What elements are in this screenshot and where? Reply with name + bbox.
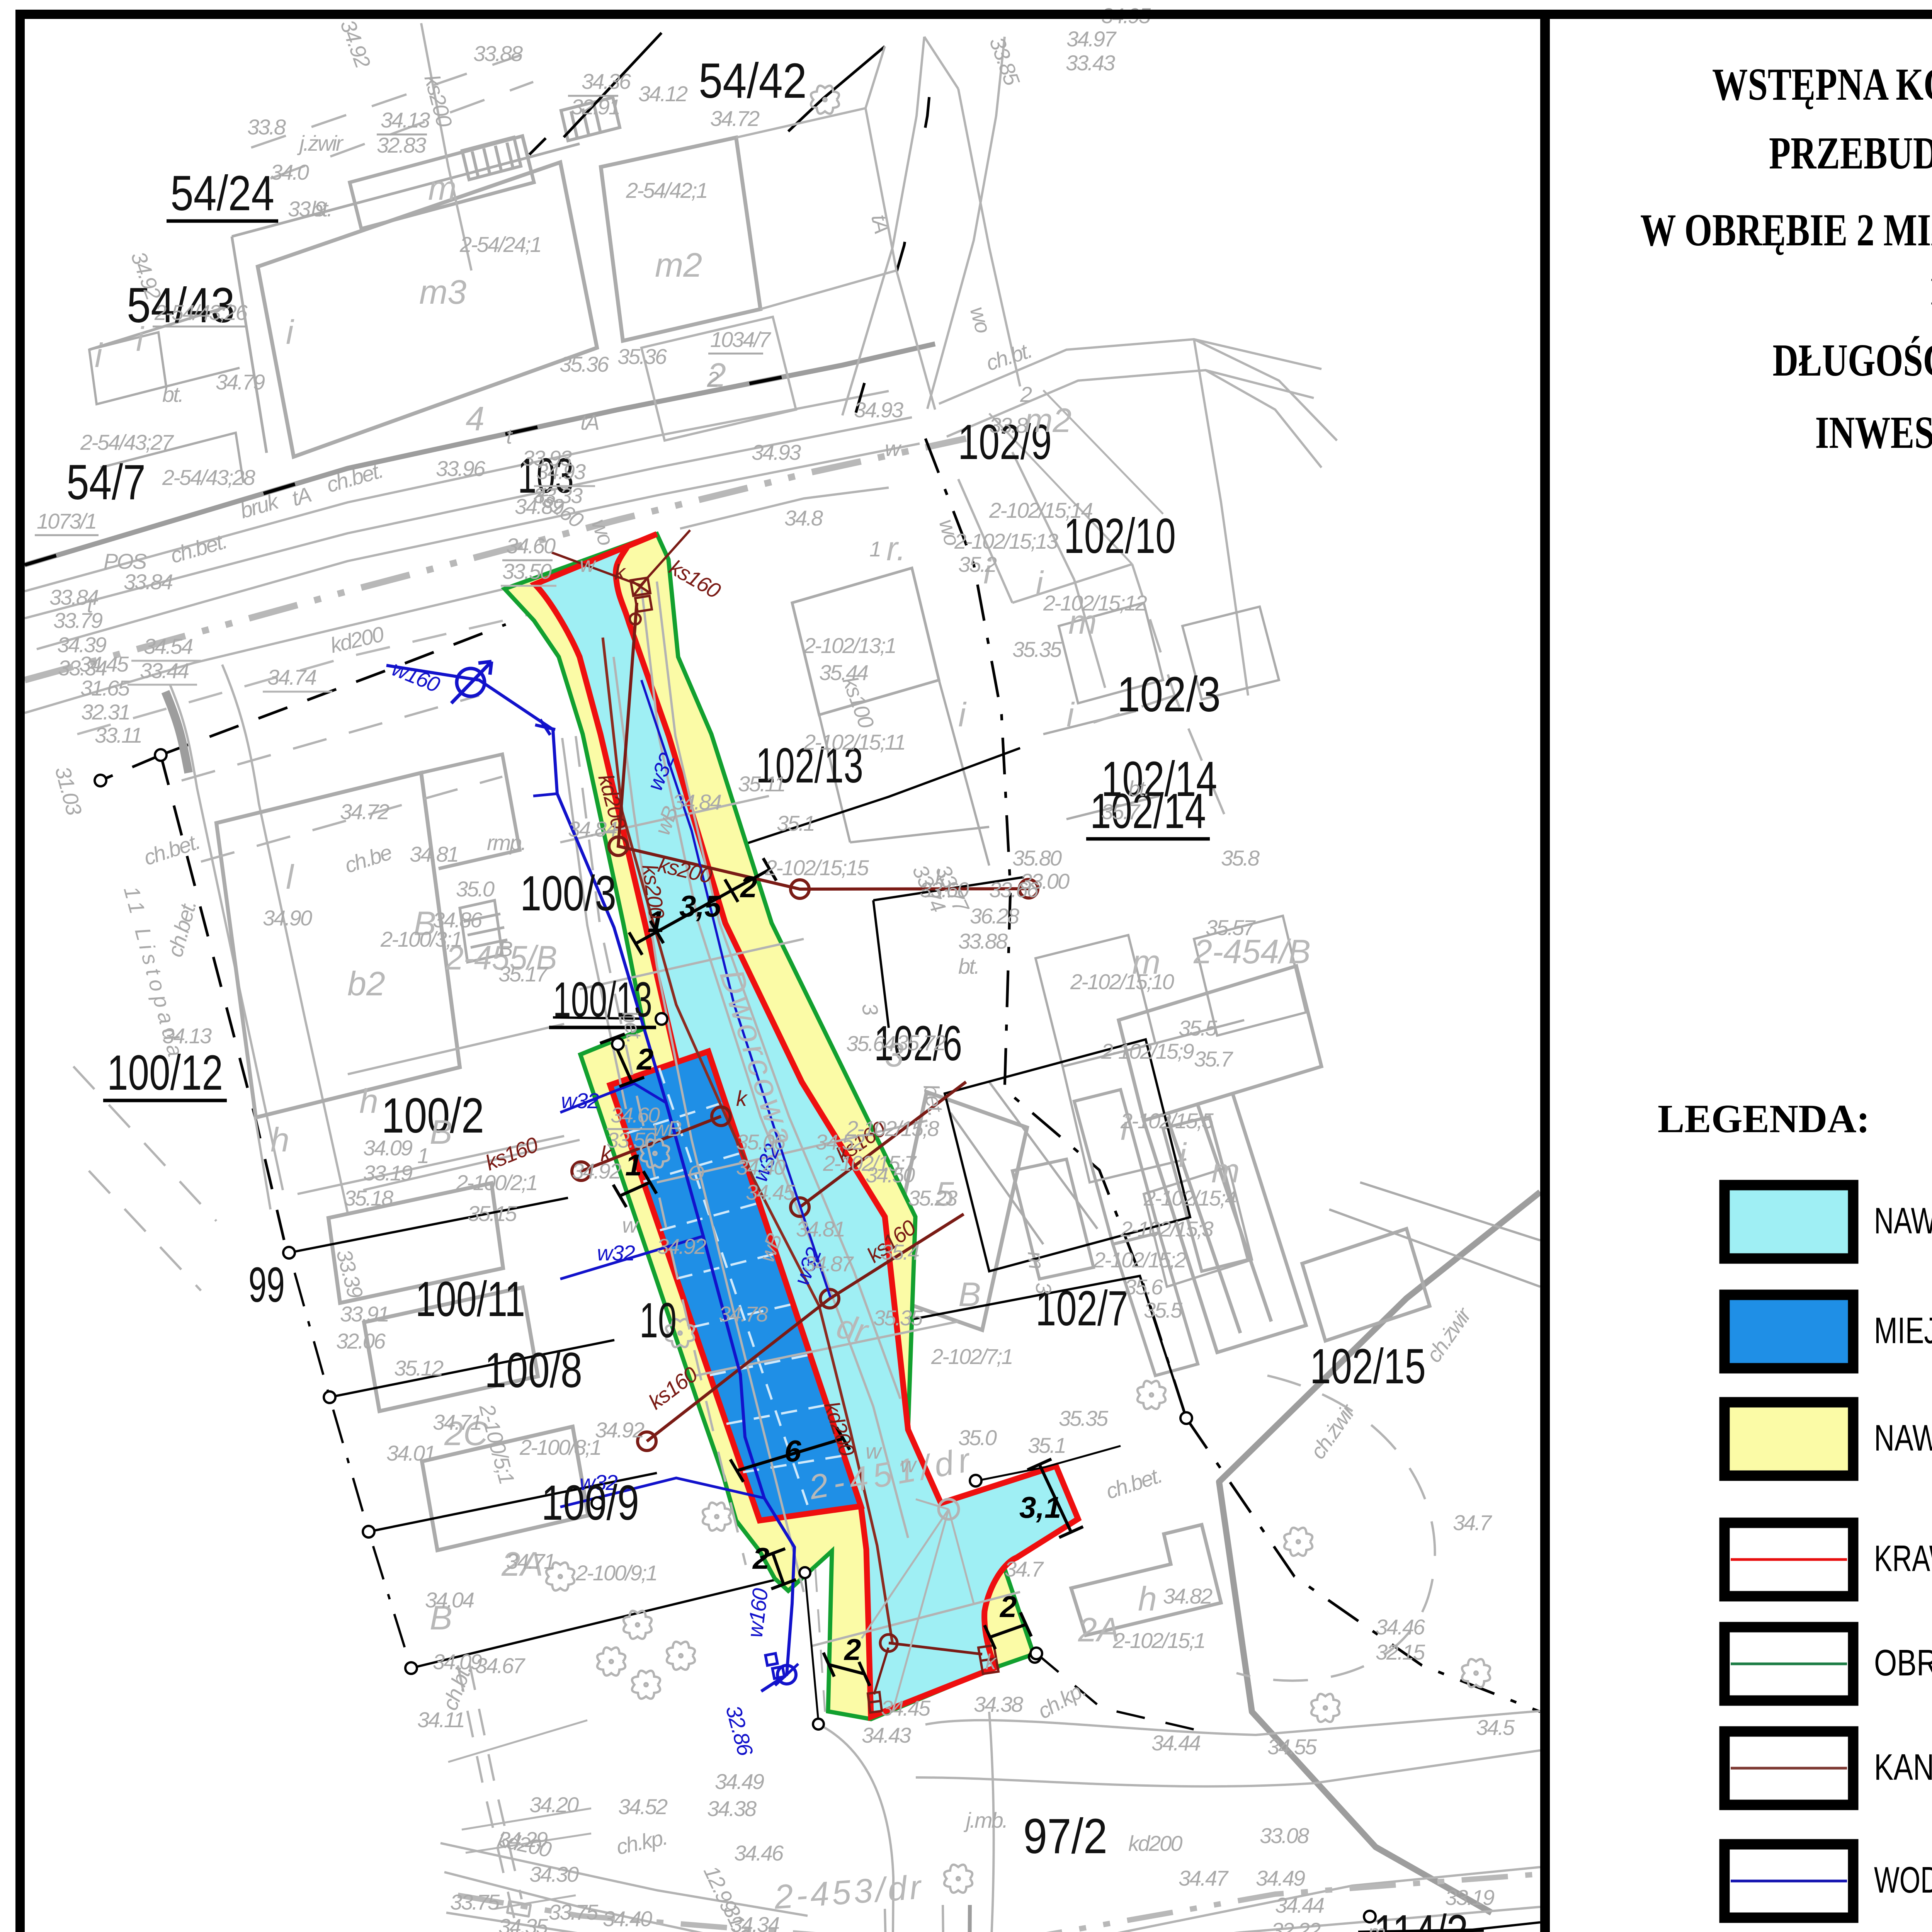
svg-text:i: i (958, 696, 967, 734)
svg-text:100/9: 100/9 (541, 1475, 639, 1531)
svg-text:54/24: 54/24 (170, 166, 274, 221)
svg-text:w: w (580, 552, 597, 577)
svg-text:h: h (270, 1121, 289, 1159)
svg-text:34.46: 34.46 (734, 1841, 784, 1865)
svg-text:OBRZEŻE: OBRZEŻE (1874, 1642, 1932, 1684)
svg-text:34.30: 34.30 (529, 1862, 579, 1886)
svg-text:100/3: 100/3 (520, 866, 616, 921)
svg-text:33.08: 33.08 (1260, 1823, 1309, 1848)
svg-text:35.64: 35.64 (846, 1031, 895, 1056)
svg-text:B: B (958, 1275, 981, 1313)
svg-text:2: 2 (1020, 382, 1032, 406)
svg-text:33.19: 33.19 (363, 1161, 412, 1185)
svg-text:34.74: 34.74 (267, 665, 316, 689)
svg-text:KRAWĘŻNIK DROGOWY: KRAWĘŻNIK DROGOWY (1874, 1538, 1932, 1579)
svg-text:w32: w32 (561, 1088, 599, 1113)
svg-text:34.60: 34.60 (506, 534, 556, 558)
svg-text:34.8: 34.8 (784, 506, 823, 530)
svg-text:34.92: 34.92 (657, 1234, 706, 1259)
svg-text:35.7: 35.7 (1101, 799, 1141, 824)
svg-text:34.04: 34.04 (425, 1588, 474, 1612)
svg-text:34.93: 34.93 (854, 398, 903, 422)
svg-text:m: m (428, 169, 456, 207)
svg-text:35.18: 35.18 (344, 1186, 393, 1210)
svg-text:34.81: 34.81 (796, 1217, 844, 1241)
svg-text:bt.: bt. (311, 197, 332, 221)
svg-text:32.31: 32.31 (81, 700, 129, 724)
svg-text:34.97: 34.97 (1066, 27, 1117, 51)
svg-text:m: m (1023, 1250, 1049, 1270)
svg-text:35.7: 35.7 (1194, 1047, 1233, 1071)
svg-text:1: 1 (869, 537, 880, 561)
svg-text:34.01: 34.01 (386, 1441, 435, 1465)
svg-text:34.71: 34.71 (433, 1410, 481, 1434)
svg-text:2-54/43;27: 2-54/43;27 (80, 430, 174, 454)
svg-text:2-54/24;1: 2-54/24;1 (459, 232, 541, 257)
svg-text:WSTĘPNA KONCEPCJA ZAKRESU ROBÓ: WSTĘPNA KONCEPCJA ZAKRESU ROBÓT (1712, 59, 1932, 110)
svg-text:35.2: 35.2 (958, 552, 997, 577)
svg-text:31.65: 31.65 (80, 676, 130, 700)
svg-text:B: B (430, 1113, 452, 1151)
svg-text:i: i (1066, 696, 1075, 734)
svg-text:w32: w32 (597, 1241, 635, 1265)
svg-text:m2: m2 (1024, 401, 1071, 439)
svg-text:2-100/3;1: 2-100/3;1 (380, 927, 462, 951)
svg-text:WODOCIĄG: WODOCIĄG (1874, 1859, 1932, 1901)
svg-text:j.mb.: j.mb. (963, 1808, 1007, 1832)
svg-text:i: i (1179, 1136, 1187, 1174)
svg-text:36.28: 36.28 (970, 904, 1019, 928)
svg-text:2-100/2;1: 2-100/2;1 (456, 1170, 537, 1195)
svg-text:34.36: 34.36 (582, 69, 631, 94)
svg-text:32.91: 32.91 (571, 95, 619, 119)
svg-text:2-102/15;15: 2-102/15;15 (765, 855, 869, 880)
svg-text:34.90: 34.90 (263, 906, 312, 930)
svg-text:35.35: 35.35 (1012, 637, 1062, 662)
svg-text:m2: m2 (655, 246, 702, 284)
svg-text:w: w (622, 1213, 639, 1237)
svg-text:34.81: 34.81 (410, 842, 458, 866)
svg-text:34.54: 34.54 (144, 634, 193, 658)
svg-text:bt.: bt. (162, 382, 183, 406)
svg-text:2-102/7;1: 2-102/7;1 (931, 1344, 1012, 1369)
svg-text:4: 4 (466, 400, 485, 438)
svg-text:2: 2 (999, 1590, 1017, 1624)
svg-text:35.0: 35.0 (958, 1425, 997, 1450)
svg-text:34.87: 34.87 (804, 1252, 854, 1276)
svg-text:35.35: 35.35 (873, 1306, 923, 1330)
svg-text:bt.: bt. (1128, 776, 1149, 801)
svg-text:34.44: 34.44 (1151, 1731, 1201, 1755)
svg-text:2-102/15;9: 2-102/15;9 (1101, 1039, 1194, 1063)
svg-text:2-102/15;12: 2-102/15;12 (1043, 591, 1147, 615)
svg-text:35.6: 35.6 (1124, 1275, 1163, 1299)
svg-text:rmp.: rmp. (487, 830, 526, 855)
svg-text:35.11: 35.11 (738, 772, 785, 796)
svg-text:34.40: 34.40 (736, 1155, 786, 1179)
svg-text:kd200: kd200 (1128, 1831, 1182, 1855)
svg-text:34.50: 34.50 (866, 1163, 915, 1187)
svg-text:34.55: 34.55 (1267, 1735, 1317, 1759)
svg-text:LEGENDA:: LEGENDA: (1658, 1097, 1870, 1141)
svg-text:34.0: 34.0 (270, 160, 309, 184)
svg-text:34.49: 34.49 (1256, 1866, 1305, 1890)
svg-text:34.92: 34.92 (595, 1418, 645, 1442)
svg-text:34.84: 34.84 (672, 790, 721, 814)
svg-text:34.5: 34.5 (1476, 1715, 1515, 1740)
svg-text:33.79: 33.79 (53, 608, 102, 633)
svg-text:33.75: 33.75 (549, 1900, 599, 1924)
svg-text:W OBRĘBIE 2 MIASTA SĘPOPOL, NA: W OBRĘBIE 2 MIASTA SĘPOPOL, NA DZIAŁKACH… (1640, 204, 1932, 255)
svg-text:99: 99 (248, 1257, 285, 1313)
svg-text:34.45: 34.45 (79, 652, 129, 676)
svg-text:NAWIERZCHNIA CHODNIKA/OPASKI: NAWIERZCHNIA CHODNIKA/OPASKI (1874, 1417, 1932, 1459)
svg-text:34.13: 34.13 (162, 1024, 212, 1048)
svg-text:l: l (286, 858, 294, 896)
svg-text:34.40: 34.40 (603, 1906, 652, 1931)
svg-text:100/8: 100/8 (485, 1343, 582, 1398)
svg-text:DŁUGOŚĆ DROGI OK. 65 METRÓW: DŁUGOŚĆ DROGI OK. 65 METRÓW (1773, 335, 1932, 386)
svg-text:2: 2 (844, 1633, 861, 1667)
svg-text:34.93: 34.93 (752, 440, 801, 464)
svg-text:34.79: 34.79 (216, 370, 265, 394)
svg-text:2-102/15;10: 2-102/15;10 (1070, 969, 1174, 994)
svg-text:35.5: 35.5 (1179, 1016, 1218, 1040)
svg-text:33.75: 33.75 (450, 1890, 500, 1914)
svg-text:33.88: 33.88 (958, 929, 1008, 953)
svg-text:34.84: 34.84 (568, 817, 617, 841)
svg-text:6: 6 (784, 1434, 801, 1468)
svg-text:35.36: 35.36 (560, 352, 609, 376)
svg-text:MIEJSCA POSTOJOWE: MIEJSCA POSTOJOWE (1874, 1310, 1932, 1351)
svg-text:34.46: 34.46 (1376, 1615, 1425, 1639)
svg-text:2: 2 (636, 1042, 653, 1076)
svg-text:m: m (1368, 1920, 1385, 1932)
svg-text:1: 1 (625, 1148, 642, 1182)
svg-text:35.23: 35.23 (908, 1186, 957, 1210)
svg-text:m: m (1211, 1151, 1240, 1190)
svg-text:32.06: 32.06 (336, 1329, 386, 1353)
svg-text:h: h (1138, 1580, 1157, 1618)
svg-text:33.8: 33.8 (247, 115, 286, 139)
svg-text:2: 2 (707, 367, 719, 391)
svg-text:34.92: 34.92 (572, 1159, 621, 1183)
svg-text:35.4: 35.4 (881, 1240, 919, 1264)
svg-text:10: 10 (639, 1293, 677, 1348)
svg-text:34.47: 34.47 (1179, 1866, 1229, 1890)
svg-text:tA: tA (580, 410, 599, 434)
svg-text:34.09: 34.09 (363, 1136, 412, 1160)
svg-text:102/15: 102/15 (1310, 1339, 1426, 1394)
svg-text:j.żwir: j.żwir (297, 131, 344, 155)
svg-text:54/42: 54/42 (699, 53, 807, 109)
svg-text:35.1: 35.1 (1028, 1433, 1065, 1458)
svg-text:35.57: 35.57 (1206, 915, 1256, 940)
svg-text:35.72: 35.72 (896, 1031, 946, 1055)
svg-text:33.50: 33.50 (502, 559, 552, 583)
svg-text:35.8: 35.8 (1221, 846, 1260, 870)
svg-text:r.: r. (886, 529, 906, 568)
svg-text:i: i (1036, 564, 1044, 602)
svg-text:100/11: 100/11 (415, 1272, 525, 1327)
svg-text:33.88: 33.88 (473, 41, 523, 66)
svg-text:34.78: 34.78 (719, 1302, 768, 1326)
svg-text:32.15: 32.15 (1376, 1640, 1425, 1664)
svg-text:102/3: 102/3 (1117, 667, 1221, 722)
svg-text:2-100/9;1: 2-100/9;1 (575, 1561, 657, 1585)
svg-text:35.1: 35.1 (777, 811, 814, 835)
svg-text:2-102/13;1: 2-102/13;1 (803, 633, 896, 658)
svg-text:34.7: 34.7 (1453, 1510, 1492, 1535)
svg-text:2-102/15;3: 2-102/15;3 (1120, 1217, 1214, 1241)
svg-text:33.44: 33.44 (140, 658, 189, 683)
svg-text:32.22: 32.22 (1271, 1918, 1321, 1932)
svg-text:i: i (95, 336, 103, 374)
svg-text:33.00: 33.00 (1020, 869, 1070, 893)
svg-text:33.50: 33.50 (607, 1128, 656, 1152)
svg-text:34.44: 34.44 (1275, 1893, 1324, 1917)
svg-text:34.52: 34.52 (618, 1794, 668, 1819)
svg-text:33.11: 33.11 (95, 723, 141, 747)
svg-text:bt.: bt. (958, 954, 979, 978)
svg-text:m3: m3 (419, 273, 466, 311)
svg-text:INWESTOR: GMINA SĘPOPOL: INWESTOR: GMINA SĘPOPOL (1815, 407, 1932, 458)
svg-text:35.36: 35.36 (617, 344, 667, 369)
svg-text:NAWIERZCHNIA DROGI: NAWIERZCHNIA DROGI (1874, 1200, 1932, 1242)
svg-text:34.38: 34.38 (707, 1796, 757, 1821)
svg-text:w: w (866, 1439, 883, 1463)
svg-text:35.80: 35.80 (1012, 846, 1062, 870)
svg-text:33.19: 33.19 (1445, 1885, 1494, 1910)
svg-text:w: w (885, 436, 902, 461)
svg-text:2-102/15;5: 2-102/15;5 (1120, 1109, 1214, 1133)
svg-text:KANALIZACJA DESZCZOWA: KANALIZACJA DESZCZOWA (1874, 1747, 1932, 1788)
svg-text:34.43: 34.43 (862, 1723, 911, 1747)
svg-text:34.67: 34.67 (475, 1653, 526, 1678)
svg-text:35.12: 35.12 (394, 1356, 444, 1380)
svg-text:54/7: 54/7 (66, 455, 146, 510)
svg-text:33.96: 33.96 (436, 456, 486, 481)
svg-text:3,1: 3,1 (1019, 1490, 1061, 1524)
svg-text:PRZEBUDOWA DROGI POŁOŻONEJ: PRZEBUDOWA DROGI POŁOŻONEJ (1769, 128, 1932, 179)
svg-text:O: O (688, 1161, 704, 1185)
svg-text:34.49: 34.49 (715, 1769, 764, 1794)
svg-text:34.45: 34.45 (746, 1180, 796, 1204)
svg-text:2-54/43;28: 2-54/43;28 (162, 465, 255, 490)
svg-text:33.84: 33.84 (49, 585, 99, 609)
svg-text:1: 1 (417, 1143, 428, 1168)
svg-text:35.15: 35.15 (468, 1201, 517, 1226)
svg-text:1034/7: 1034/7 (710, 327, 771, 352)
svg-text:34.45: 34.45 (881, 1696, 931, 1720)
svg-text:34.29: 34.29 (498, 1827, 548, 1852)
svg-text:2-102/15;1: 2-102/15;1 (1112, 1628, 1205, 1653)
svg-text:34.82: 34.82 (1163, 1584, 1213, 1608)
svg-text:34.72: 34.72 (710, 106, 760, 131)
svg-text:b2: b2 (347, 964, 385, 1003)
svg-text:34.20: 34.20 (529, 1793, 579, 1817)
svg-text:2-54/43;26: 2-54/43;26 (154, 300, 248, 325)
svg-text:h: h (359, 1082, 378, 1120)
svg-text:34.12: 34.12 (638, 82, 688, 106)
svg-text:32.83: 32.83 (377, 133, 426, 157)
svg-text:2-102/15;11: 2-102/15;11 (803, 730, 905, 754)
svg-text:3,5: 3,5 (679, 889, 722, 923)
svg-text:33.93: 33.93 (522, 446, 572, 470)
svg-text:35.0: 35.0 (456, 877, 495, 901)
svg-text:34.13: 34.13 (381, 108, 430, 132)
svg-text:B: B (498, 937, 512, 961)
svg-text:35.35: 35.35 (1059, 1406, 1109, 1430)
svg-text:2-102/15;4: 2-102/15;4 (1143, 1186, 1236, 1210)
svg-text:2: 2 (740, 870, 757, 904)
svg-text:97/2: 97/2 (1023, 1809, 1107, 1864)
svg-text:33.43: 33.43 (1066, 51, 1115, 75)
svg-text:2: 2 (752, 1541, 769, 1575)
svg-text:34.7: 34.7 (1005, 1557, 1044, 1581)
svg-text:34.38: 34.38 (974, 1692, 1023, 1716)
svg-text:2-102/15;13: 2-102/15;13 (954, 529, 1058, 553)
svg-text:33.8: 33.8 (989, 413, 1028, 437)
svg-text:35.06: 35.06 (736, 1130, 786, 1154)
svg-text:35.5: 35.5 (1144, 1298, 1183, 1322)
svg-text:2-102/15;2: 2-102/15;2 (1093, 1248, 1187, 1272)
svg-text:34.72: 34.72 (340, 799, 389, 824)
svg-text:POS: POS (104, 549, 147, 573)
svg-text:w: w (900, 1452, 917, 1477)
svg-text:i: i (136, 320, 145, 358)
svg-text:34.60: 34.60 (611, 1103, 660, 1127)
svg-text:100/10, 101, 102/15: 100/10, 101, 102/15 (1929, 264, 1932, 315)
svg-text:2-54/42;1: 2-54/42;1 (626, 178, 707, 202)
svg-text:i: i (286, 313, 294, 351)
svg-text:35.17: 35.17 (498, 962, 549, 986)
svg-text:33.91: 33.91 (340, 1302, 388, 1326)
svg-text:34.52: 34.52 (815, 1130, 865, 1154)
svg-text:34.71: 34.71 (506, 1549, 554, 1573)
svg-text:1073/1: 1073/1 (37, 509, 96, 533)
svg-text:2-102/15;14: 2-102/15;14 (989, 498, 1093, 522)
svg-text:2-100/8;1: 2-100/8;1 (519, 1435, 601, 1459)
